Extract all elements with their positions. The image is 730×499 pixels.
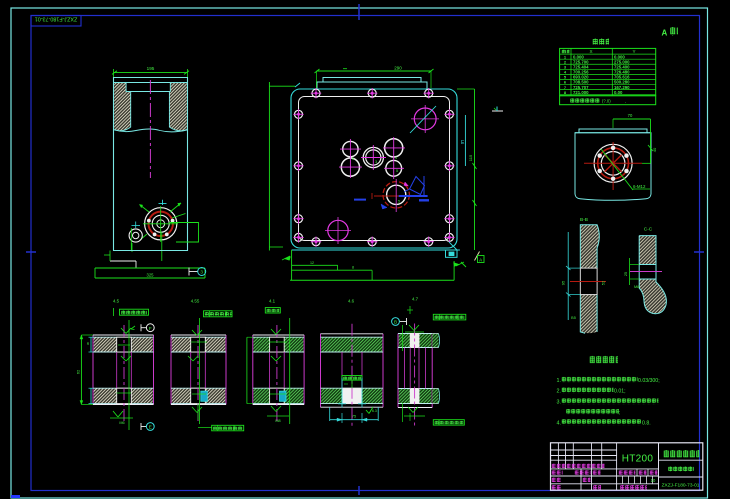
svg-text:115: 115	[468, 154, 473, 161]
svg-text:3.: 3.	[557, 399, 562, 405]
svg-text:75: 75	[352, 415, 356, 419]
svg-text:721.000: 721.000	[573, 90, 589, 95]
svg-text:325: 325	[147, 273, 155, 278]
svg-text:E: E	[149, 425, 152, 430]
svg-text:6-M12: 6-M12	[633, 184, 646, 189]
svg-text:4.55: 4.55	[191, 299, 200, 304]
svg-text:3: 3	[375, 160, 377, 164]
svg-text:0.00: 0.00	[614, 90, 623, 95]
svg-text:12: 12	[310, 261, 314, 265]
svg-text:0.8.: 0.8.	[642, 420, 651, 426]
svg-text:4.6: 4.6	[348, 299, 355, 304]
svg-text:52: 52	[601, 280, 606, 285]
svg-text:40: 40	[652, 147, 657, 152]
svg-text:1: 1	[395, 156, 397, 160]
svg-text:62: 62	[76, 369, 81, 374]
svg-text:0.01;: 0.01;	[614, 389, 626, 395]
svg-text:C-C: C-C	[644, 227, 653, 233]
svg-text:.: .	[625, 99, 626, 105]
svg-text:(?.0): (?.0)	[602, 99, 611, 104]
svg-text:;: ;	[619, 410, 620, 416]
svg-text:4.1: 4.1	[269, 299, 276, 304]
svg-text:290: 290	[394, 66, 402, 71]
svg-text:1.: 1.	[557, 378, 562, 384]
svg-text:M8: M8	[275, 419, 280, 423]
svg-text:70: 70	[628, 113, 633, 118]
svg-text:8: 8	[352, 266, 354, 270]
svg-text:25: 25	[624, 272, 628, 276]
svg-text:B5: B5	[571, 316, 576, 320]
svg-text:0.03/300;: 0.03/300;	[638, 378, 660, 384]
svg-text:5: 5	[398, 200, 400, 204]
svg-text:4.7: 4.7	[412, 297, 419, 302]
svg-text:4.5: 4.5	[113, 299, 120, 304]
svg-text:HT200: HT200	[622, 454, 654, 465]
svg-text:2.: 2.	[557, 389, 562, 395]
svg-text:5: 5	[352, 157, 354, 161]
svg-text:X: X	[589, 49, 592, 54]
svg-text:ZXZJ-F180-73-01: ZXZJ-F180-73-01	[662, 483, 700, 489]
svg-text:B: B	[394, 320, 397, 325]
svg-text:B-B: B-B	[580, 217, 588, 223]
svg-text:M6: M6	[119, 421, 124, 425]
svg-text:10: 10	[651, 478, 656, 483]
svg-text:Y: Y	[632, 49, 635, 54]
svg-text:A: A	[662, 29, 668, 38]
svg-text:4.: 4.	[557, 420, 562, 426]
svg-text:F: F	[149, 326, 152, 331]
svg-text:5: 5	[396, 169, 398, 173]
svg-text:M8: M8	[634, 285, 639, 289]
svg-text:95: 95	[561, 280, 566, 285]
svg-text:6.3: 6.3	[372, 409, 377, 413]
svg-text:ZXZJ-F180-73-01: ZXZJ-F180-73-01	[35, 16, 78, 22]
svg-text:3: 3	[200, 270, 203, 275]
svg-text:195: 195	[147, 66, 155, 71]
